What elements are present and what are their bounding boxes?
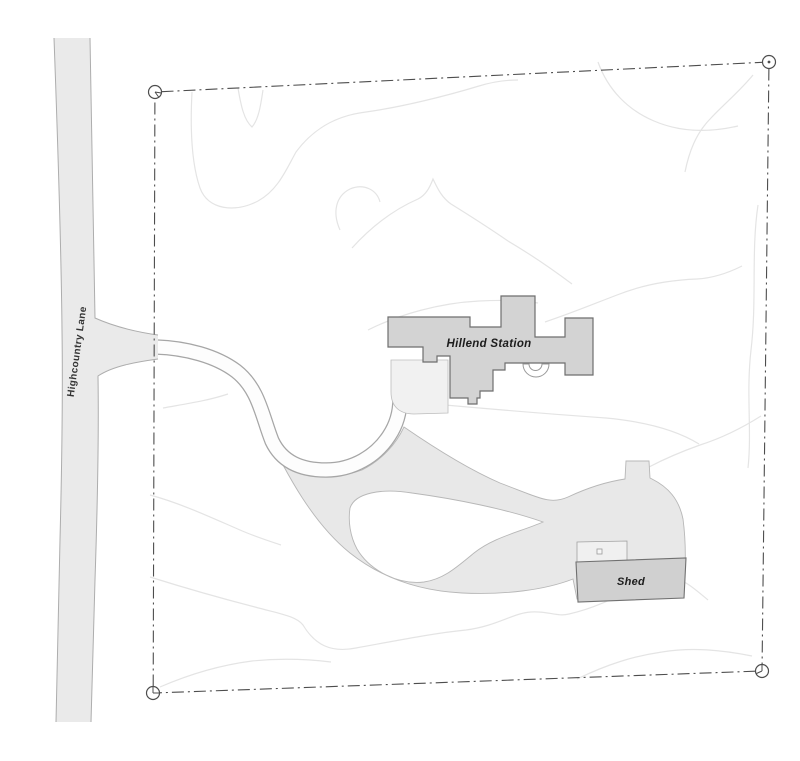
boundary-marker-top-right	[763, 56, 776, 69]
contour-line	[445, 405, 699, 444]
boundary-line-left	[153, 99, 155, 687]
site-plan-drawing: Hillend Station Shed Highcountry Lane	[0, 0, 800, 761]
contour-line	[598, 62, 738, 130]
contour-line	[238, 88, 263, 127]
contour-line	[685, 75, 753, 172]
contour-line	[163, 394, 228, 408]
boundary-line-right	[762, 69, 769, 665]
curved-step-detail	[523, 364, 549, 377]
road-edge-right-lower	[91, 359, 158, 722]
shed-label: Shed	[617, 576, 645, 588]
site-plan-page: Hillend Station Shed Highcountry Lane	[0, 0, 800, 761]
courtyard-pad	[391, 360, 448, 414]
boundary-marker-bottom-right	[756, 665, 769, 678]
main-building-label: Hillend Station	[447, 338, 532, 350]
boundary-line-bottom	[160, 671, 756, 693]
boundary-marker-top-left	[149, 86, 162, 99]
contour-line	[352, 179, 572, 284]
contour-line	[160, 659, 331, 687]
contour-line	[748, 205, 758, 468]
road-edge-right-upper	[90, 38, 158, 335]
contour-line	[150, 495, 281, 545]
boundary-line-top	[162, 62, 763, 91]
driveway	[156, 347, 400, 470]
contour-line	[336, 187, 380, 230]
tank-marker	[597, 549, 602, 554]
contour-line	[545, 266, 742, 322]
boundary-marker-bottom-left	[147, 687, 160, 700]
